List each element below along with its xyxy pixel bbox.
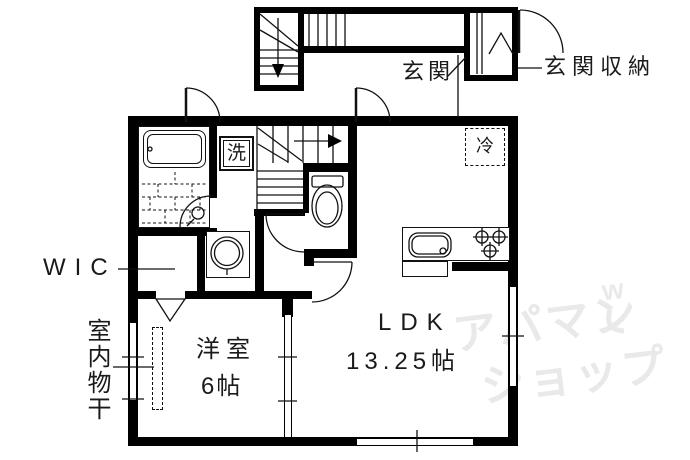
window-ticks: [122, 336, 524, 452]
room-label-western-room: 洋室: [196, 338, 256, 362]
stairs-main: [257, 126, 342, 209]
floor-plan: アパマン w ショップ: [0, 0, 690, 460]
stove-burners: [473, 228, 508, 260]
room-label-wic: WIC: [43, 256, 117, 280]
tub-drain: [148, 147, 152, 151]
kitchen-sink: [409, 233, 451, 257]
door-arc-hall-ldk: [312, 262, 352, 302]
door-arc-top-left: [186, 88, 220, 122]
entrance-storage-shelves: [477, 13, 513, 74]
watermark-swoosh: [609, 310, 624, 331]
leader-lines: [113, 57, 542, 367]
room-label-ldk: LDK: [378, 311, 452, 335]
door-triangle-wic: [156, 299, 185, 321]
fixture-label-fridge: 冷: [476, 137, 494, 155]
room-label-indoor-drying: 室内物干: [84, 318, 108, 422]
room-label-entrance-storage: 玄関収納: [544, 56, 656, 78]
washbasin: [211, 237, 243, 275]
door-arc-bath: [180, 196, 211, 227]
bath-tile-pattern: [142, 172, 208, 223]
door-arc-entrance-storage: [519, 10, 563, 53]
fixture-label-washer: 洗: [227, 144, 246, 163]
room-label-entrance: 玄関: [402, 61, 454, 83]
room-size-ldk: 13.25帖: [346, 350, 460, 374]
stairs-upper: [260, 14, 345, 78]
room-size-western-room: 6帖: [201, 375, 242, 399]
door-arc-entry: [356, 88, 390, 122]
toilet: [312, 176, 343, 227]
stairs-up-arrow: [328, 134, 342, 148]
stairs-down-arrow: [272, 64, 284, 78]
door-arc-toilet: [266, 214, 304, 252]
